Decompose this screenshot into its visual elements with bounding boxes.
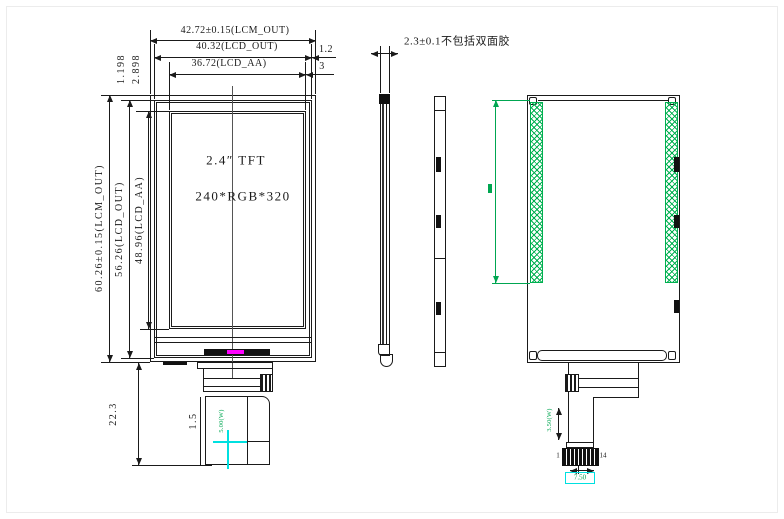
- fpc-tail-line: [247, 397, 248, 465]
- extension-line: [154, 44, 155, 99]
- side-frame-tab: [436, 157, 441, 172]
- extension-line: [140, 329, 169, 330]
- stiffener-hatch: [260, 374, 273, 392]
- magenta-highlight: [227, 350, 244, 354]
- tape-mark: [163, 362, 187, 365]
- side-profile-line: [389, 104, 390, 344]
- center-line: [232, 86, 233, 378]
- side-frame-line: [434, 352, 446, 353]
- rear-outline: [527, 95, 680, 363]
- panel-resolution-label: 240*RGB*320: [195, 190, 290, 203]
- cyan-highlight-line: [213, 441, 247, 443]
- dim-width-lcm-label: 42.72±0.15(LCM_OUT): [179, 26, 292, 36]
- tape-dimension-text-mark: [488, 184, 492, 193]
- extension-line: [136, 111, 169, 112]
- dim-connector-width-label: 7.50: [574, 475, 586, 482]
- pin-first-label: 1: [556, 453, 560, 460]
- extension-line: [132, 465, 212, 466]
- dimension-line: [169, 74, 306, 75]
- tape-dimension-line: [495, 100, 496, 283]
- front-bottom-line: [154, 342, 312, 343]
- dimension-line: [371, 53, 398, 54]
- adhesive-tape-strip: [665, 102, 678, 283]
- rear-edge-tab: [674, 300, 679, 313]
- side-fpc-tip: [380, 354, 393, 367]
- dimension-line: [129, 100, 130, 358]
- rear-fpc-strip-line: [578, 378, 638, 379]
- extension-line: [121, 358, 154, 359]
- dim-edge-aa-label: 3: [319, 62, 325, 72]
- side-profile-line: [386, 104, 387, 344]
- rear-fpc-edge: [638, 363, 639, 398]
- dimension-line: [200, 397, 201, 465]
- rear-bottom-slot: [537, 350, 667, 361]
- side-profile-line: [380, 104, 381, 344]
- fpc-tail-front: [205, 396, 270, 465]
- dim-edge-lcd-label: 1.2: [319, 45, 333, 55]
- dimension-line: [558, 408, 559, 440]
- side-frame-line: [434, 258, 446, 259]
- tape-extension-line: [492, 100, 530, 101]
- tape-extension-line: [492, 283, 530, 284]
- panel-size-label: 2.4″ TFT: [206, 154, 266, 167]
- front-bottom-line: [154, 337, 312, 338]
- dimension-leader: [306, 74, 334, 75]
- side-frame-line: [434, 110, 446, 111]
- side-frame-tab: [436, 215, 441, 228]
- dim-thickness-label: 2.3±0.1不包括双面胶: [404, 37, 510, 48]
- stiffener-hatch: [565, 374, 579, 392]
- rear-corner-mark: [668, 351, 676, 360]
- rear-edge-tab: [674, 157, 679, 172]
- extension-line: [101, 362, 150, 363]
- rear-edge-tab: [674, 215, 679, 228]
- cyan-highlight-line: [227, 430, 229, 469]
- dim-width-lcd-label: 40.32(LCD_OUT): [194, 42, 280, 52]
- side-profile-top-cap: [379, 94, 390, 104]
- dim-width-aa-label: 36.72(LCD_AA): [189, 59, 268, 69]
- extension-line: [169, 62, 170, 110]
- fpc-tail-line: [247, 441, 270, 442]
- pin-last-label: 14: [600, 453, 607, 460]
- engineering-drawing-sheet: 2.4″ TFT 240*RGB*320 42.72±0.15(LCM_OUT)…: [0, 0, 784, 519]
- rear-corner-mark: [529, 351, 537, 360]
- rear-fpc-edge: [593, 398, 594, 443]
- side-frame-tab: [436, 302, 441, 315]
- fpc-connector-pins: [562, 448, 599, 466]
- extension-line: [305, 62, 306, 110]
- rear-top-inner-line: [538, 100, 668, 101]
- rear-fpc-edge: [593, 397, 639, 398]
- dimension-line: [570, 470, 594, 471]
- dimension-leader: [312, 57, 336, 58]
- front-active-area-inner: [171, 113, 304, 327]
- extension-line: [121, 100, 154, 101]
- dimension-line: [138, 363, 139, 465]
- side-profile-glass: [382, 104, 384, 344]
- dimension-line: [109, 95, 110, 362]
- side-frame-outline: [434, 96, 446, 367]
- dimension-line: [148, 111, 149, 329]
- rear-fpc-strip-line: [578, 387, 638, 388]
- adhesive-tape-strip: [530, 102, 543, 283]
